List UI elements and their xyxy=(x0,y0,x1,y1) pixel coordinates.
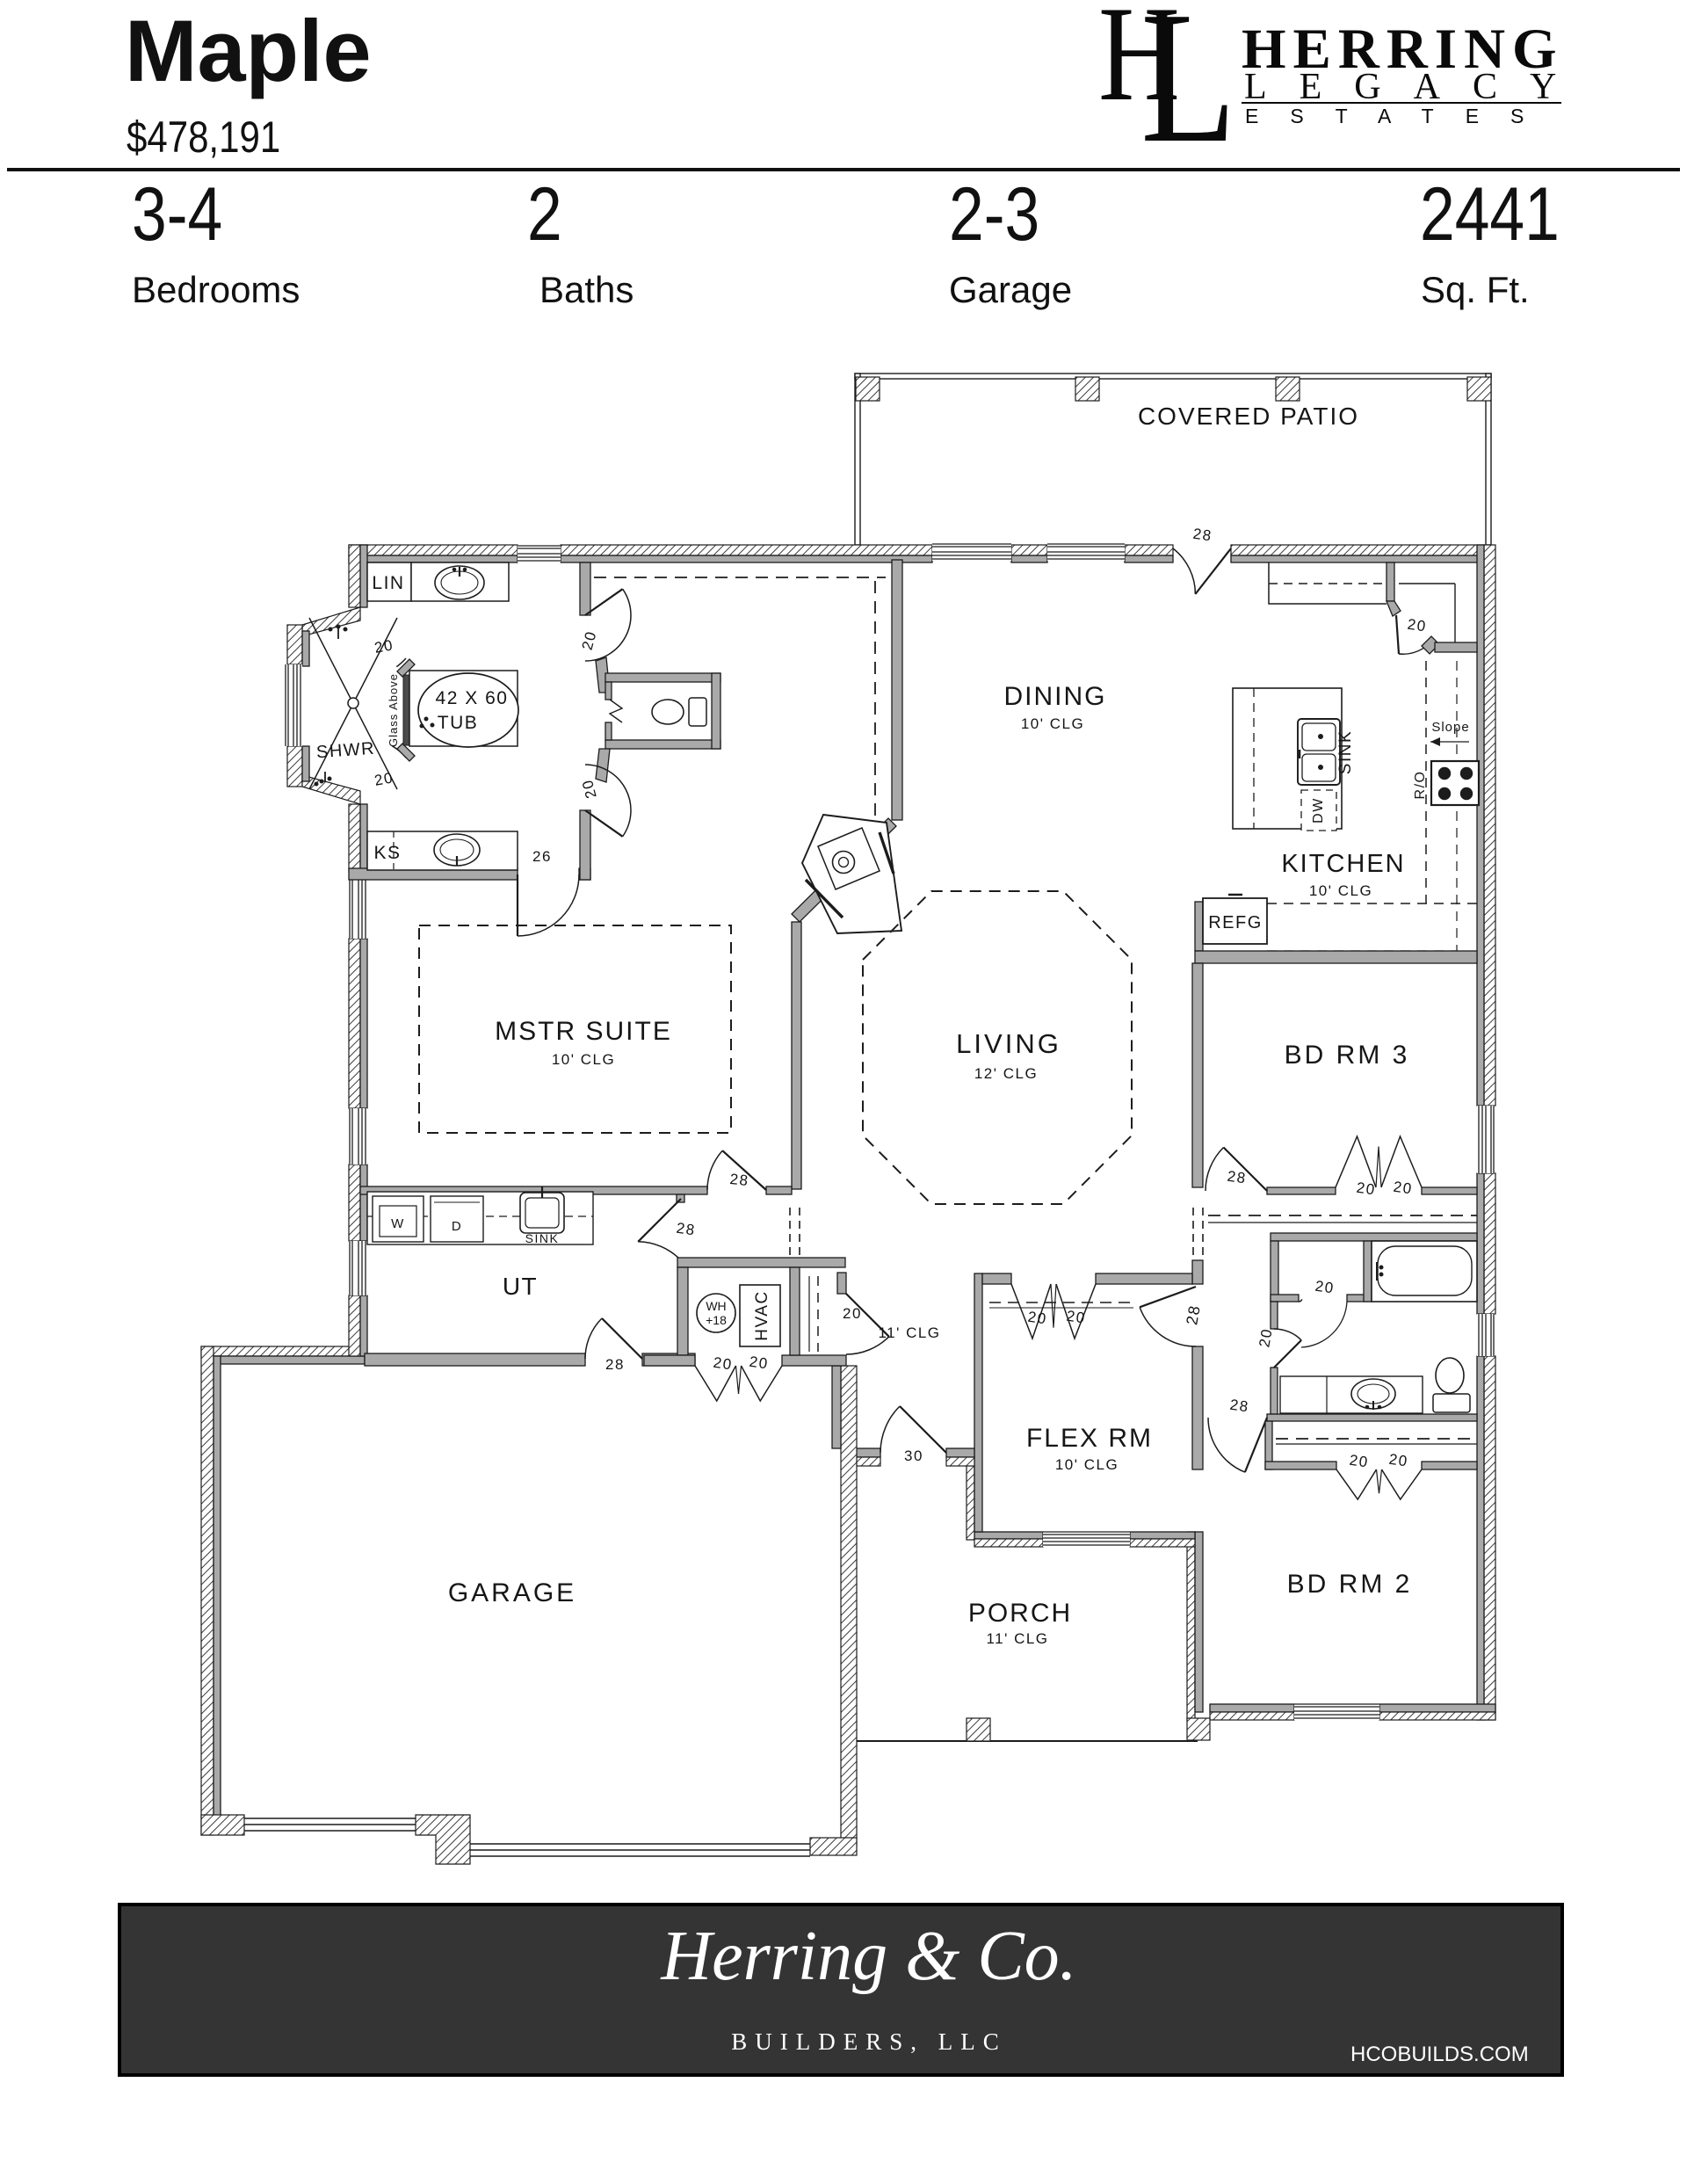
svg-text:28: 28 xyxy=(1229,1397,1250,1416)
svg-text:20: 20 xyxy=(1407,616,1428,635)
svg-text:20: 20 xyxy=(1256,1327,1276,1349)
svg-text:FLEX RM: FLEX RM xyxy=(1026,1424,1153,1453)
svg-text:42 X 60: 42 X 60 xyxy=(436,688,509,708)
svg-text:28: 28 xyxy=(1192,526,1213,545)
svg-text:LIN: LIN xyxy=(372,573,404,593)
svg-text:28: 28 xyxy=(605,1356,625,1373)
svg-text:BD RM 3: BD RM 3 xyxy=(1285,1041,1410,1070)
svg-text:Slope: Slope xyxy=(1431,720,1469,735)
svg-text:20: 20 xyxy=(713,1354,734,1374)
svg-text:20: 20 xyxy=(1393,1179,1414,1198)
svg-text:KS: KS xyxy=(373,843,401,863)
svg-text:10' CLG: 10' CLG xyxy=(552,1051,615,1068)
svg-text:20: 20 xyxy=(1314,1278,1336,1297)
svg-text:20: 20 xyxy=(579,777,600,800)
svg-text:10' CLG: 10' CLG xyxy=(1309,882,1372,899)
svg-text:20: 20 xyxy=(1349,1452,1370,1471)
svg-text:W: W xyxy=(391,1216,405,1231)
svg-text:SHWR: SHWR xyxy=(315,739,375,763)
svg-text:28: 28 xyxy=(676,1220,697,1239)
svg-text:MSTR SUITE: MSTR SUITE xyxy=(495,1017,672,1046)
svg-text:LIVING: LIVING xyxy=(956,1028,1061,1059)
svg-text:UT: UT xyxy=(503,1273,538,1300)
svg-text:20: 20 xyxy=(373,769,395,789)
svg-text:20: 20 xyxy=(749,1353,770,1373)
svg-text:REFG: REFG xyxy=(1208,913,1263,932)
svg-text:20: 20 xyxy=(1027,1309,1048,1328)
svg-text:20: 20 xyxy=(1388,1451,1409,1470)
svg-text:HVAC: HVAC xyxy=(753,1290,771,1340)
svg-text:28: 28 xyxy=(729,1171,750,1189)
svg-text:11' CLG: 11' CLG xyxy=(878,1324,940,1341)
svg-text:PORCH: PORCH xyxy=(968,1599,1072,1628)
svg-text:KITCHEN: KITCHEN xyxy=(1281,850,1405,878)
svg-text:20: 20 xyxy=(843,1305,862,1322)
svg-text:28: 28 xyxy=(1183,1303,1204,1326)
svg-text:SINK: SINK xyxy=(1336,730,1355,774)
svg-text:20: 20 xyxy=(1356,1179,1377,1199)
svg-text:SINK: SINK xyxy=(525,1231,560,1245)
svg-text:+18: +18 xyxy=(706,1313,727,1327)
svg-text:10' CLG: 10' CLG xyxy=(1021,715,1084,732)
svg-text:30: 30 xyxy=(904,1448,923,1464)
svg-text:WH: WH xyxy=(706,1299,726,1313)
svg-text:Glass Above: Glass Above xyxy=(387,673,400,747)
svg-text:DINING: DINING xyxy=(1004,682,1107,711)
svg-text:20: 20 xyxy=(579,629,600,652)
svg-text:TUB: TUB xyxy=(438,713,479,733)
svg-text:26: 26 xyxy=(532,848,552,865)
svg-text:COVERED PATIO: COVERED PATIO xyxy=(1138,403,1359,430)
svg-text:28: 28 xyxy=(1227,1168,1248,1187)
svg-text:D: D xyxy=(452,1219,462,1234)
svg-text:11' CLG: 11' CLG xyxy=(986,1630,1048,1647)
svg-text:20: 20 xyxy=(1066,1308,1087,1327)
svg-text:12' CLG: 12' CLG xyxy=(974,1065,1038,1082)
svg-text:R/O: R/O xyxy=(1413,771,1428,800)
svg-text:20: 20 xyxy=(373,636,395,657)
svg-text:10' CLG: 10' CLG xyxy=(1055,1456,1119,1473)
svg-text:DW: DW xyxy=(1311,797,1326,824)
svg-text:BD RM 2: BD RM 2 xyxy=(1287,1570,1413,1599)
svg-text:GARAGE: GARAGE xyxy=(448,1578,576,1607)
